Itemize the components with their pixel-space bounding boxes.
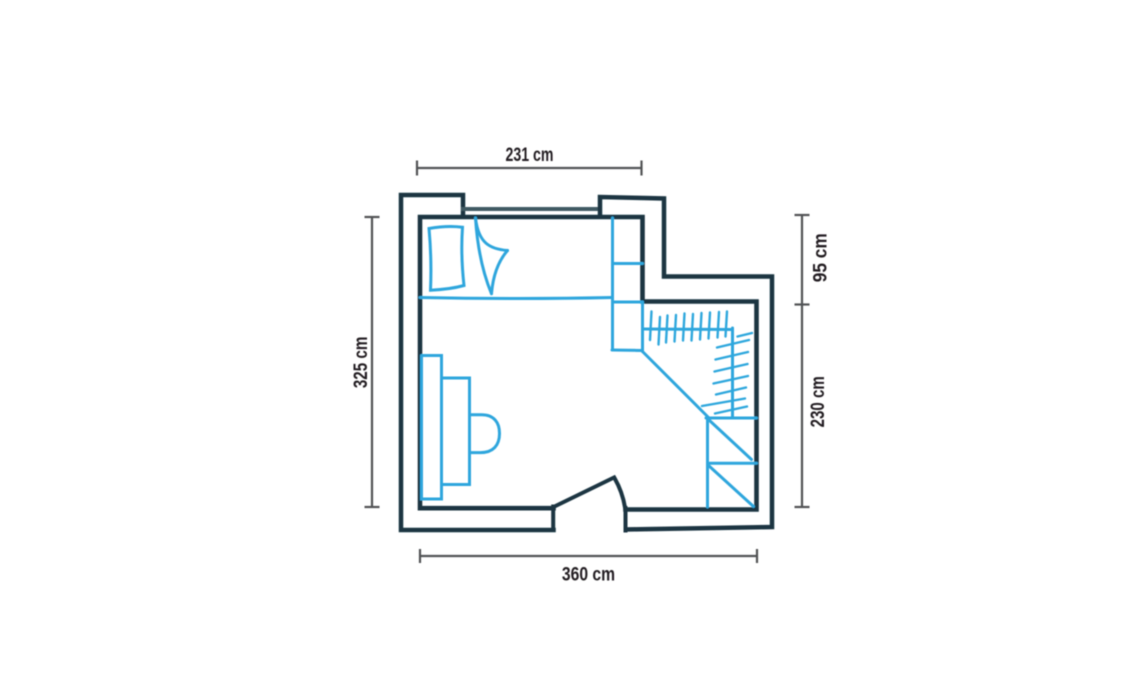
- svg-text:95 cm: 95 cm: [810, 233, 831, 282]
- svg-text:231 cm: 231 cm: [505, 144, 553, 166]
- svg-text:230 cm: 230 cm: [806, 376, 828, 427]
- svg-text:360 cm: 360 cm: [562, 563, 615, 585]
- svg-text:325 cm: 325 cm: [349, 337, 371, 389]
